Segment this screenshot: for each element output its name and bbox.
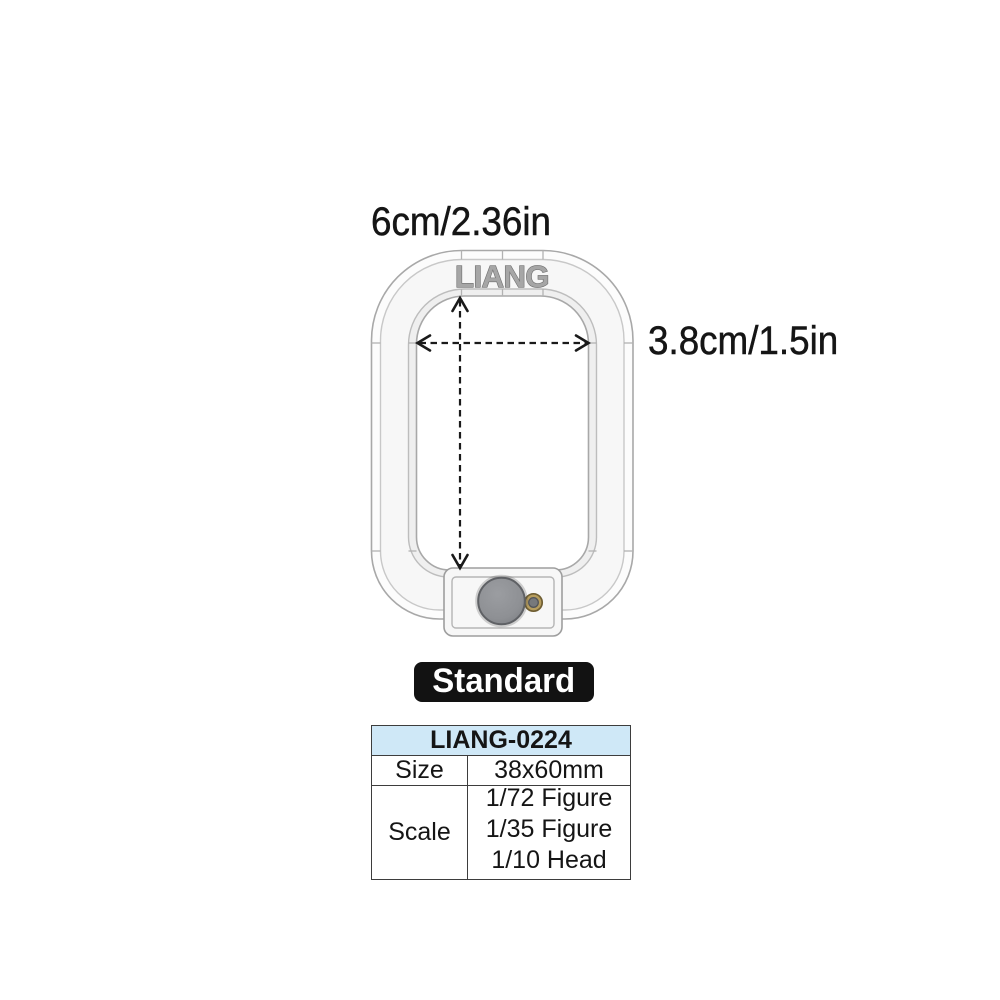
svg-text:LIANG: LIANG <box>455 259 549 294</box>
